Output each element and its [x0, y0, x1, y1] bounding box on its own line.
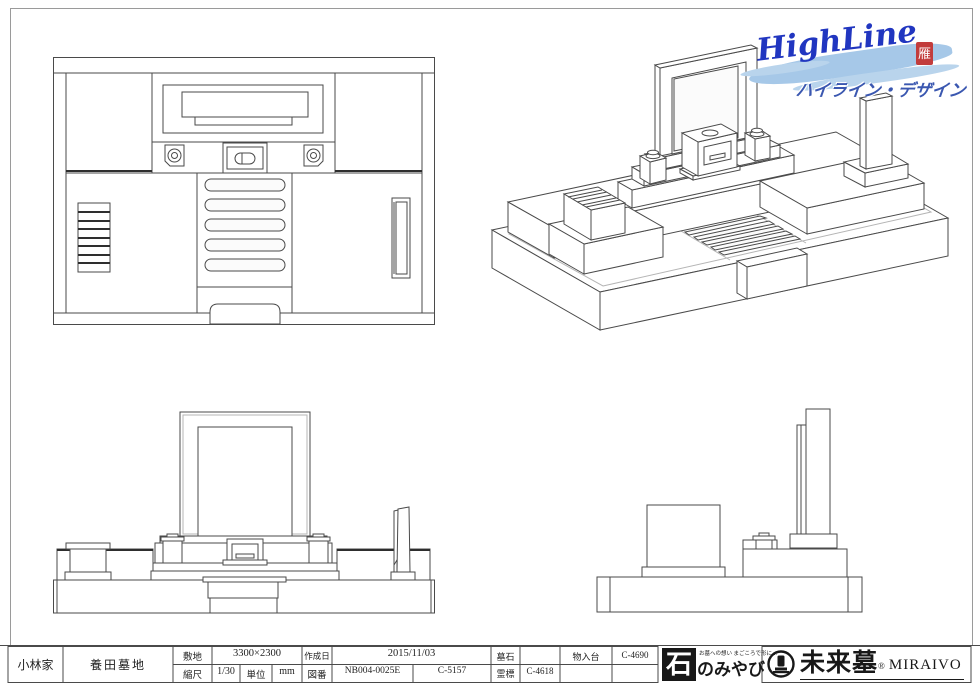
- date-label: 作成日: [302, 650, 332, 662]
- miraibo-roman: MIRAIVO: [889, 657, 962, 673]
- monoire-value: C-4690: [612, 650, 658, 660]
- site-value: 3300×2300: [212, 648, 302, 659]
- miraibo-logo: 未来墓® MIRAIVO: [762, 646, 971, 682]
- reihyo-value: C-4618: [520, 666, 560, 676]
- unit-label: 単位: [240, 667, 272, 681]
- red-seal-icon: 雁: [916, 42, 933, 65]
- cemetery-name: 養田墓地: [63, 656, 173, 673]
- miraibo-logo-text: 未来墓® MIRAIVO: [800, 649, 964, 680]
- highline-logo-subtitle: ハイライン・デザイン: [795, 76, 967, 101]
- boseki-label: 墓石: [491, 650, 520, 663]
- monoire-label: 物入台: [560, 650, 612, 663]
- ishi-kanji-mark: 石: [662, 648, 696, 681]
- miraibo-stone-icon: [766, 649, 796, 679]
- miraibo-kanji: 未来墓: [800, 650, 878, 677]
- front-elevation-drawing: [53, 410, 435, 614]
- unit-value: mm: [272, 666, 302, 677]
- family-name: 小林家: [8, 656, 63, 673]
- plan-view-drawing: [53, 57, 435, 325]
- reihyo-label: 霊標: [491, 667, 520, 680]
- site-label: 敷地: [173, 649, 212, 663]
- ishinomiyabi-logo-text: のみやび: [697, 655, 759, 680]
- zuban-label: 図番: [302, 667, 332, 681]
- zuban-value-1: NB004-0025E: [332, 666, 413, 676]
- zuban-value-2: C-5157: [413, 666, 491, 676]
- highline-logo: HighLine 雁 ハイライン・デザイン: [740, 12, 972, 112]
- scale-label: 縮尺: [173, 667, 212, 681]
- registered-mark-icon: ®: [878, 661, 885, 671]
- scale-value: 1/30: [212, 666, 240, 677]
- side-elevation-drawing: [595, 400, 865, 615]
- drawing-sheet: HighLine 雁 ハイライン・デザイン 小林家 養田墓地 敷地 3300×2…: [0, 0, 980, 686]
- date-value: 2015/11/03: [332, 648, 491, 659]
